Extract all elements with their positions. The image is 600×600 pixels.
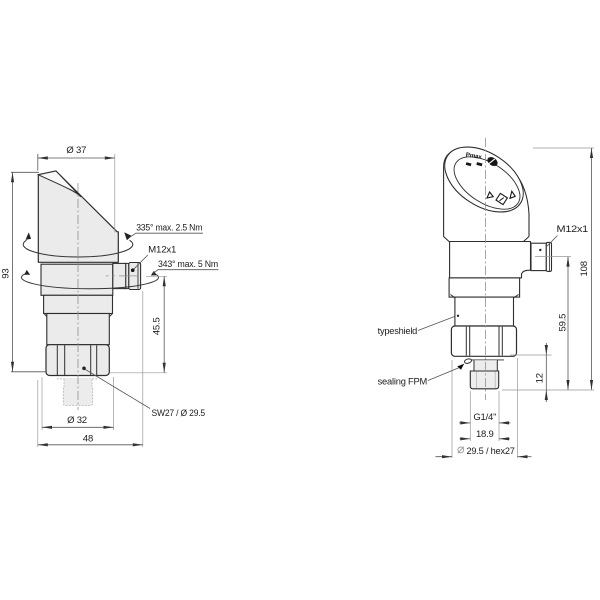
svg-text:Ø 37: Ø 37 (66, 145, 86, 156)
svg-text:M12x1: M12x1 (557, 224, 589, 234)
svg-text:G1/4": G1/4" (473, 412, 496, 423)
svg-text:29.5 / hex27: 29.5 / hex27 (467, 446, 515, 456)
svg-text:Ø 32: Ø 32 (67, 415, 87, 426)
svg-text:335° max. 2.5 Nm: 335° max. 2.5 Nm (136, 223, 202, 233)
svg-text:typeshield: typeshield (378, 326, 418, 336)
svg-text:93: 93 (1, 269, 12, 279)
svg-text:108: 108 (579, 261, 590, 276)
svg-text:48: 48 (83, 434, 93, 445)
svg-text:12: 12 (535, 373, 546, 383)
svg-text:SW27 / Ø 29.5: SW27 / Ø 29.5 (152, 408, 206, 418)
svg-text:45.5: 45.5 (152, 317, 163, 335)
svg-text:18.9: 18.9 (476, 429, 494, 440)
svg-text:343° max. 5 Nm: 343° max. 5 Nm (158, 259, 218, 269)
svg-text:M12x1: M12x1 (148, 245, 176, 255)
svg-text:sealing FPM: sealing FPM (378, 377, 428, 387)
svg-text:59.5: 59.5 (558, 314, 569, 332)
